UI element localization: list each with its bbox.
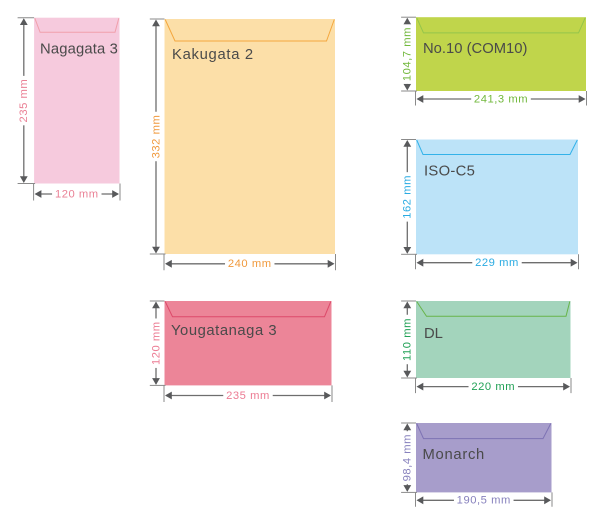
svg-text:110 mm: 110 mm [402,318,414,361]
svg-text:332 mm: 332 mm [150,115,162,159]
svg-text:235 mm: 235 mm [18,79,30,123]
svg-text:120 mm: 120 mm [55,188,99,200]
svg-text:162 mm: 162 mm [402,175,414,219]
svg-text:120 mm: 120 mm [150,321,162,365]
svg-text:229 mm: 229 mm [475,257,519,269]
svg-text:190,5 mm: 190,5 mm [457,495,511,507]
svg-text:Yougatanaga 3: Yougatanaga 3 [171,323,277,339]
svg-text:235 mm: 235 mm [226,390,270,402]
svg-text:240 mm: 240 mm [228,258,272,270]
svg-text:241,3 mm: 241,3 mm [474,93,528,105]
svg-text:104,7 mm: 104,7 mm [402,27,414,81]
svg-text:Nagagata 3: Nagagata 3 [40,42,118,58]
svg-text:220 mm: 220 mm [471,381,515,393]
svg-text:No.10 (COM10): No.10 (COM10) [423,41,528,57]
svg-text:ISO-C5: ISO-C5 [424,164,475,180]
svg-text:Monarch: Monarch [423,447,485,463]
svg-text:Kakugata 2: Kakugata 2 [172,47,254,63]
svg-text:DL: DL [424,326,443,342]
svg-text:98,4 mm: 98,4 mm [402,434,414,481]
